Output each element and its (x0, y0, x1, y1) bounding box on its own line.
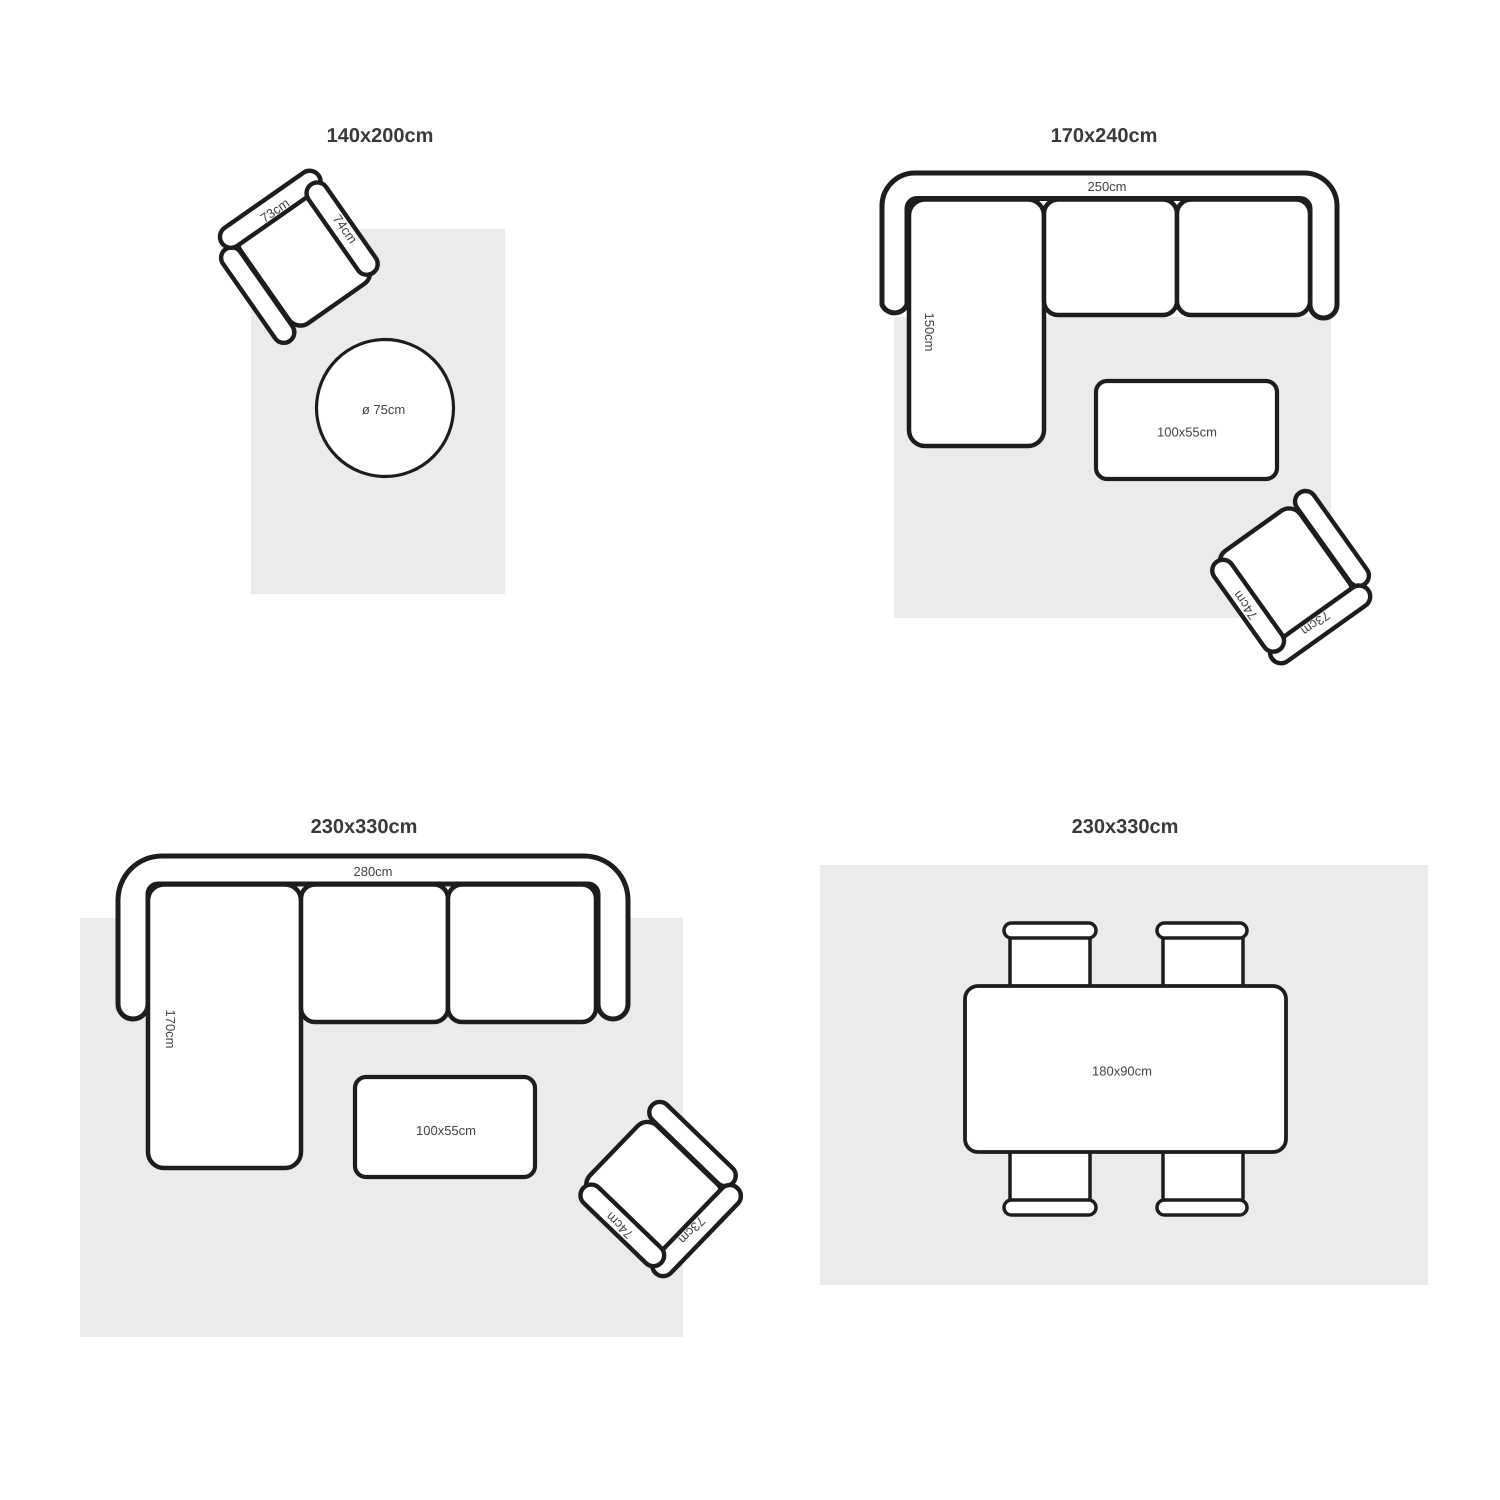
svg-text:280cm: 280cm (353, 864, 392, 879)
svg-text:180x90cm: 180x90cm (1092, 1064, 1152, 1079)
svg-text:230x330cm: 230x330cm (1072, 816, 1179, 838)
svg-text:170cm: 170cm (163, 1009, 178, 1048)
svg-text:150cm: 150cm (922, 312, 937, 351)
svg-text:100x55cm: 100x55cm (416, 1123, 476, 1138)
svg-text:100x55cm: 100x55cm (1157, 425, 1217, 440)
svg-text:ø 75cm: ø 75cm (362, 402, 405, 417)
svg-text:140x200cm: 140x200cm (327, 125, 434, 147)
svg-text:170x240cm: 170x240cm (1051, 125, 1158, 147)
svg-text:230x330cm: 230x330cm (311, 816, 418, 838)
svg-text:250cm: 250cm (1087, 179, 1126, 194)
